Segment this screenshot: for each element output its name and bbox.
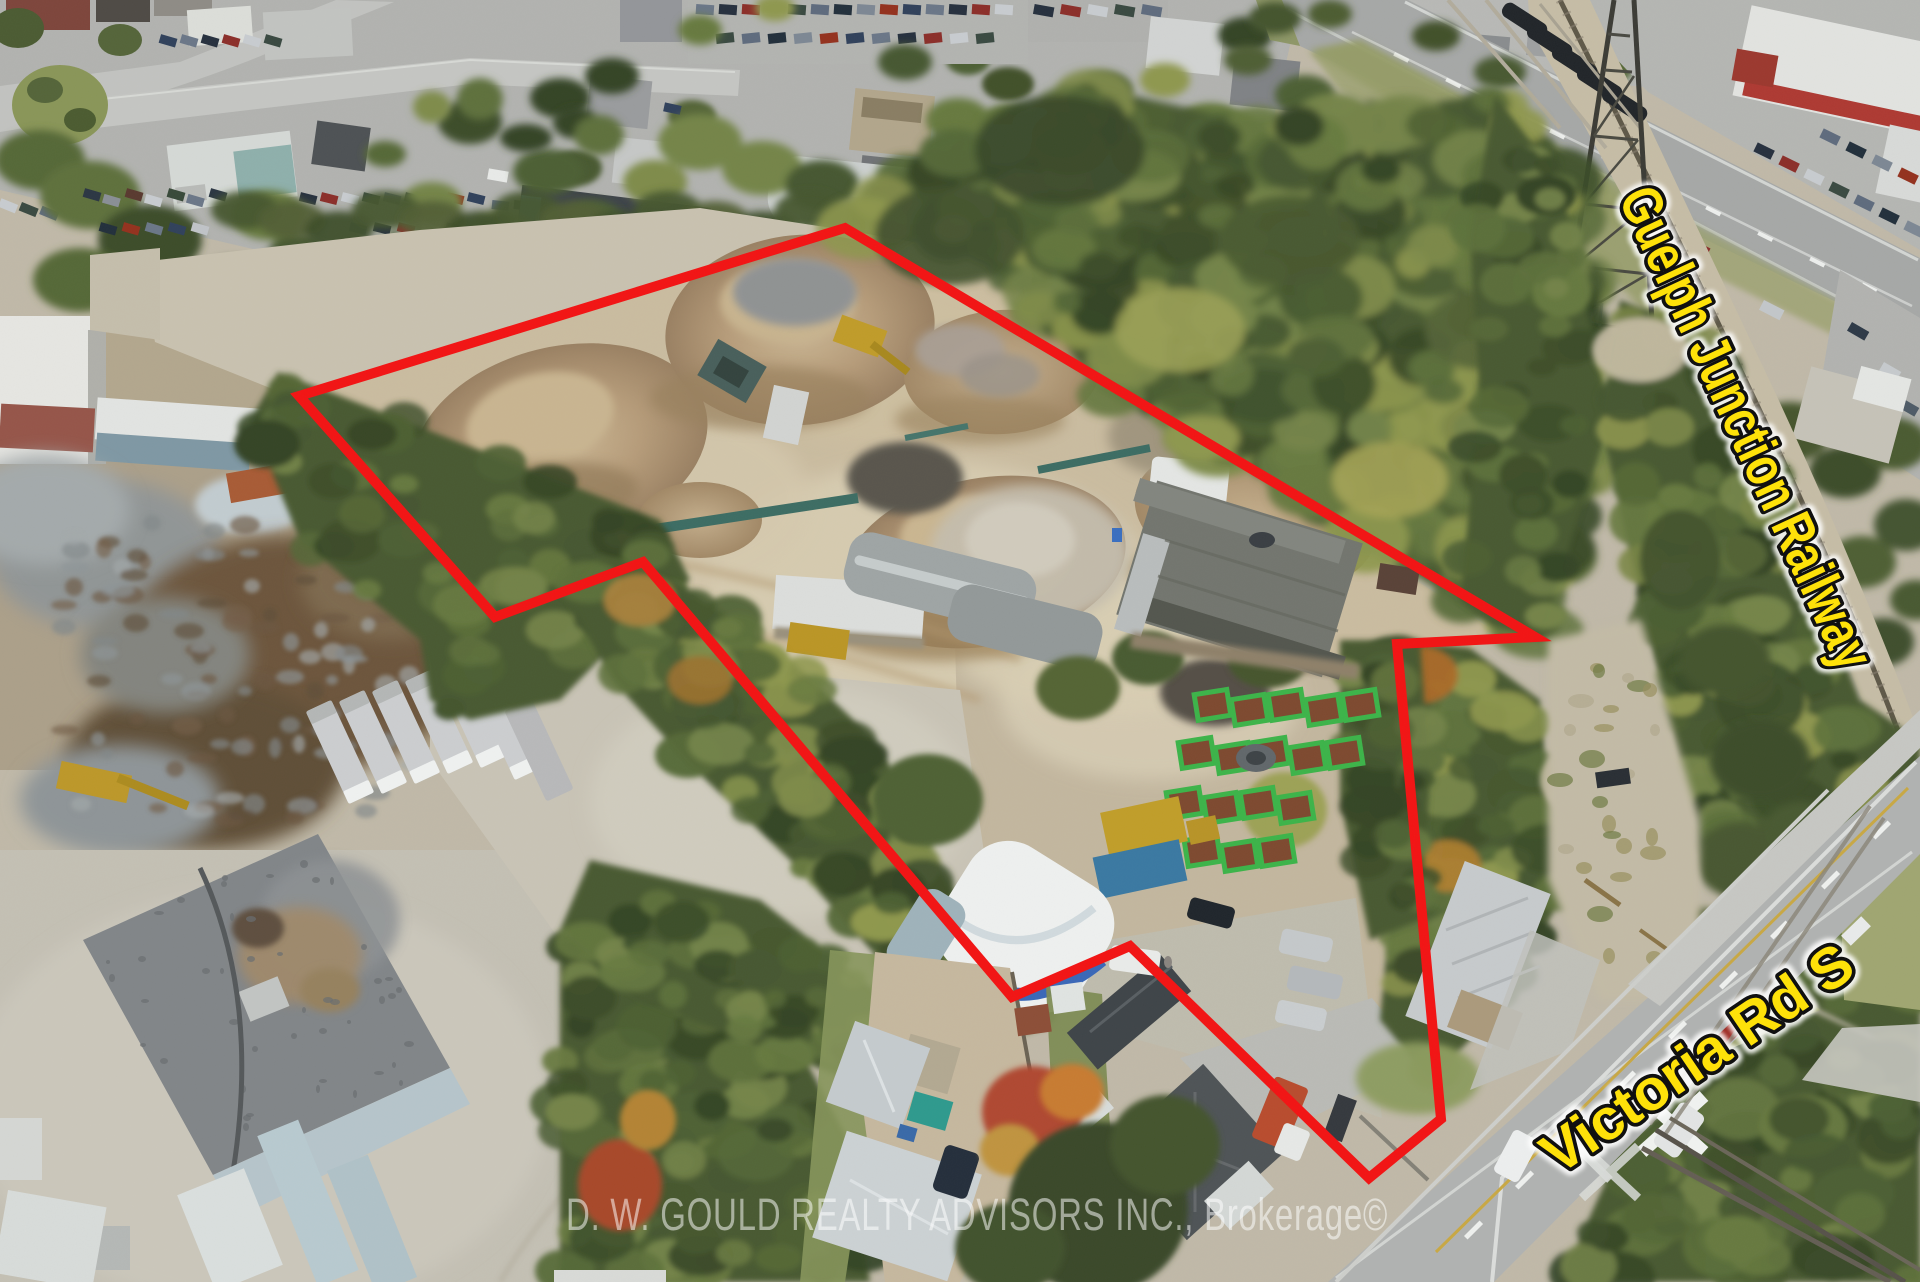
- svg-text:D. W. GOULD REALTY ADVISORS IN: D. W. GOULD REALTY ADVISORS INC., Broker…: [566, 1189, 1388, 1240]
